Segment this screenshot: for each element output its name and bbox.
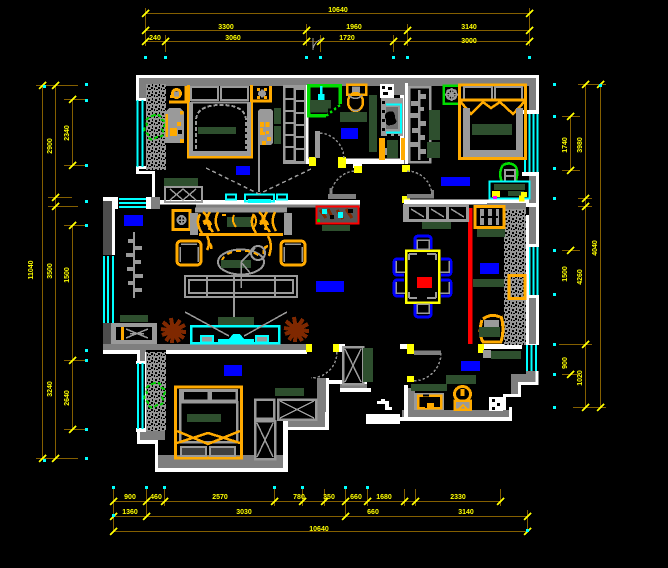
svg-text:1740: 1740 <box>562 137 569 153</box>
svg-text:4040: 4040 <box>592 240 599 256</box>
svg-text:1720: 1720 <box>339 35 355 42</box>
svg-text:4260: 4260 <box>577 269 584 285</box>
svg-text:1680: 1680 <box>376 494 392 501</box>
svg-text:1500: 1500 <box>562 266 569 282</box>
svg-text:3500: 3500 <box>47 263 54 279</box>
svg-text:1960: 1960 <box>346 24 362 31</box>
svg-text:660: 660 <box>350 494 362 501</box>
svg-text:3140: 3140 <box>458 509 474 516</box>
svg-text:900: 900 <box>562 357 569 369</box>
svg-text:1020: 1020 <box>577 370 584 386</box>
svg-text:3060: 3060 <box>225 35 241 42</box>
svg-text:2640: 2640 <box>64 390 71 406</box>
svg-text:1360: 1360 <box>122 509 138 516</box>
svg-text:3030: 3030 <box>236 509 252 516</box>
svg-text:900: 900 <box>124 494 136 501</box>
svg-text:1500: 1500 <box>64 267 71 283</box>
svg-text:3140: 3140 <box>461 24 477 31</box>
svg-text:10640: 10640 <box>309 526 329 533</box>
svg-text:3300: 3300 <box>218 24 234 31</box>
svg-text:3980: 3980 <box>577 137 584 153</box>
svg-text:2570: 2570 <box>212 494 228 501</box>
svg-text:2330: 2330 <box>450 494 466 501</box>
svg-text:2900: 2900 <box>47 138 54 154</box>
svg-text:11040: 11040 <box>28 260 35 279</box>
svg-text:3000: 3000 <box>461 38 477 45</box>
svg-text:460: 460 <box>150 494 162 501</box>
svg-text:2340: 2340 <box>64 125 71 141</box>
svg-text:660: 660 <box>367 509 379 516</box>
svg-text:240: 240 <box>149 35 161 42</box>
svg-text:3240: 3240 <box>47 381 54 397</box>
svg-text:10640: 10640 <box>328 7 348 14</box>
